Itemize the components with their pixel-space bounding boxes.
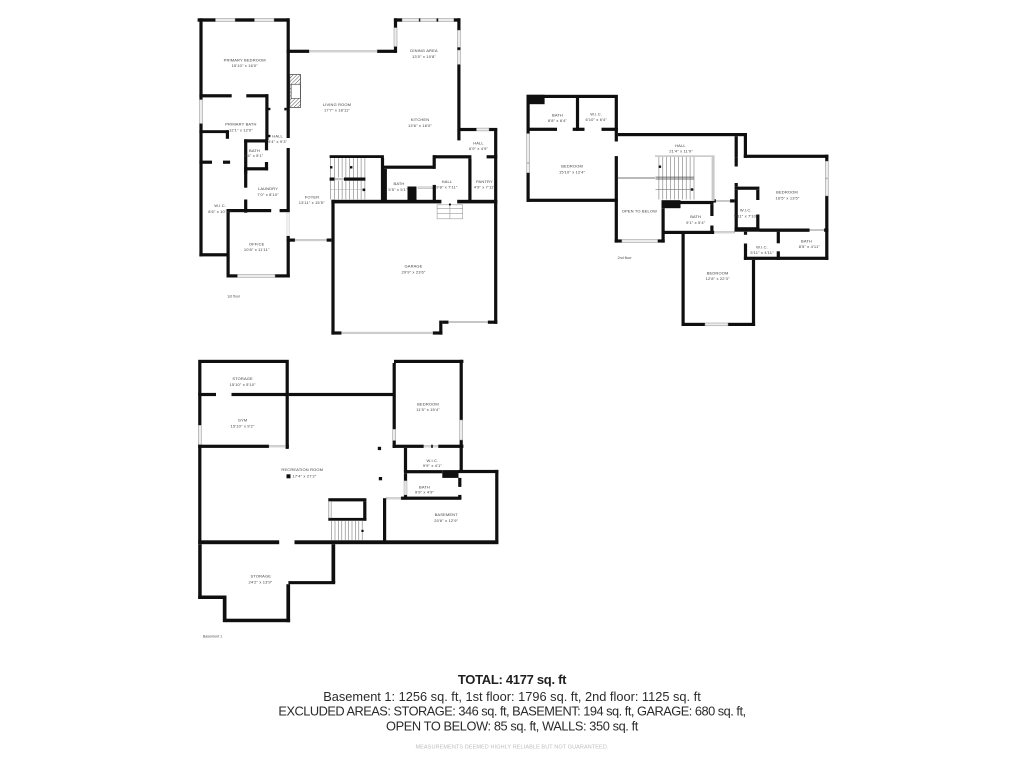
svg-text:W.I.C.: W.I.C. bbox=[214, 203, 226, 208]
svg-text:PANTRY: PANTRY bbox=[476, 179, 493, 184]
svg-text:21'4" x 11'9": 21'4" x 11'9" bbox=[669, 149, 693, 154]
svg-text:15'10" x 16'0": 15'10" x 16'0" bbox=[232, 63, 259, 68]
svg-text:9'9" x 4'9": 9'9" x 4'9" bbox=[415, 490, 435, 495]
svg-text:12'1" x 12'0": 12'1" x 12'0" bbox=[229, 127, 253, 132]
svg-text:13'0" x 10'8": 13'0" x 10'8" bbox=[412, 54, 436, 59]
svg-text:2nd floor: 2nd floor bbox=[618, 256, 633, 260]
svg-text:BATH: BATH bbox=[394, 181, 405, 186]
svg-text:BASEMENT: BASEMENT bbox=[435, 512, 459, 517]
svg-text:BATH: BATH bbox=[690, 214, 701, 219]
svg-text:BEDROOM: BEDROOM bbox=[561, 164, 583, 169]
svg-text:6'9" x 4'9": 6'9" x 4'9" bbox=[469, 146, 489, 151]
svg-text:16'5" x 13'5": 16'5" x 13'5" bbox=[776, 195, 800, 200]
svg-text:STORAGE: STORAGE bbox=[232, 376, 253, 381]
svg-text:8'8" x 6'4": 8'8" x 6'4" bbox=[548, 118, 568, 123]
svg-text:HALL: HALL bbox=[272, 134, 283, 139]
svg-text:24'2" x 13'9": 24'2" x 13'9" bbox=[248, 579, 272, 584]
svg-text:20'6" x 12'9": 20'6" x 12'9" bbox=[434, 518, 458, 523]
svg-text:11'5" x 15'4": 11'5" x 15'4" bbox=[416, 407, 440, 412]
svg-text:TOTAL: 4177 sq. ft: TOTAL: 4177 sq. ft bbox=[458, 672, 567, 687]
svg-text:OPEN TO BELOW: 85 sq. ft, WALL: OPEN TO BELOW: 85 sq. ft, WALLS: 350 sq.… bbox=[386, 719, 639, 734]
svg-text:17'4" x 27'2": 17'4" x 27'2" bbox=[293, 474, 317, 479]
svg-text:15'10" x 9'2": 15'10" x 9'2" bbox=[231, 424, 255, 429]
svg-text:MEASUREMENTS DEEMED HIGHLY REL: MEASUREMENTS DEEMED HIGHLY RELIABLE BUT … bbox=[415, 744, 608, 750]
svg-text:8'6" x 10'10": 8'6" x 10'10" bbox=[208, 209, 232, 214]
svg-text:BATH: BATH bbox=[552, 112, 563, 117]
svg-text:HALL: HALL bbox=[442, 179, 453, 184]
svg-text:GARAGE: GARAGE bbox=[404, 264, 422, 269]
svg-text:5'11" x 7'10": 5'11" x 7'10" bbox=[734, 213, 758, 218]
svg-text:13'6" x 16'0": 13'6" x 16'0" bbox=[408, 123, 432, 128]
svg-text:29'9" x 23'6": 29'9" x 23'6" bbox=[402, 269, 426, 274]
svg-text:HALL: HALL bbox=[473, 140, 484, 145]
svg-text:LIVING ROOM: LIVING ROOM bbox=[323, 102, 351, 107]
svg-text:BEDROOM: BEDROOM bbox=[417, 401, 439, 406]
svg-text:5'11" x 4'11": 5'11" x 4'11" bbox=[750, 250, 774, 255]
svg-text:4'9" x 7'11": 4'9" x 7'11" bbox=[474, 185, 496, 190]
svg-text:LAUNDRY: LAUNDRY bbox=[258, 186, 278, 191]
svg-text:13'11" x 15'5": 13'11" x 15'5" bbox=[299, 200, 325, 205]
svg-text:Basement 1: 1256 sq. ft, 1st f: Basement 1: 1256 sq. ft, 1st floor: 1796… bbox=[323, 689, 701, 704]
svg-text:9'8" x 7'11": 9'8" x 7'11" bbox=[436, 185, 458, 190]
svg-text:12'8" x 22'3": 12'8" x 22'3" bbox=[706, 276, 730, 281]
svg-text:OPEN TO BELOW: OPEN TO BELOW bbox=[622, 209, 657, 214]
svg-text:DINING AREA: DINING AREA bbox=[410, 48, 438, 53]
svg-text:W.I.C.: W.I.C. bbox=[740, 208, 752, 213]
svg-text:PRIMARY BATH: PRIMARY BATH bbox=[225, 122, 256, 127]
svg-text:5'5" x 5'1": 5'5" x 5'1" bbox=[388, 187, 408, 192]
svg-text:EXCLUDED AREAS: STORAGE: 346 s: EXCLUDED AREAS: STORAGE: 346 sq. ft, BAS… bbox=[278, 704, 745, 719]
svg-text:HALL: HALL bbox=[675, 143, 686, 148]
svg-text:10'8" x 11'11": 10'8" x 11'11" bbox=[244, 247, 270, 252]
svg-text:9'1" x 5'4": 9'1" x 5'4" bbox=[686, 220, 706, 225]
svg-text:17'7" x 18'11": 17'7" x 18'11" bbox=[324, 108, 350, 113]
svg-text:KITCHEN: KITCHEN bbox=[411, 117, 430, 122]
svg-text:OFFICE: OFFICE bbox=[249, 241, 265, 246]
svg-text:1st floor: 1st floor bbox=[227, 294, 241, 298]
svg-text:BEDROOM: BEDROOM bbox=[776, 190, 798, 195]
svg-text:15'10" x 5'10": 15'10" x 5'10" bbox=[229, 382, 256, 387]
svg-text:7'0" x 8'10": 7'0" x 8'10" bbox=[257, 192, 279, 197]
svg-text:STORAGE: STORAGE bbox=[251, 573, 272, 578]
svg-text:8'5" x 4'11": 8'5" x 4'11" bbox=[799, 244, 821, 249]
svg-text:BATH: BATH bbox=[419, 484, 430, 489]
svg-text:RECREATION ROOM: RECREATION ROOM bbox=[281, 467, 323, 472]
svg-text:15'10" x 12'4": 15'10" x 12'4" bbox=[559, 169, 586, 174]
svg-text:BEDROOM: BEDROOM bbox=[707, 271, 729, 276]
svg-text:W.I.C.: W.I.C. bbox=[756, 245, 768, 250]
svg-text:6'10" x 6'4": 6'10" x 6'4" bbox=[585, 117, 607, 122]
svg-text:PRIMARY BEDROOM: PRIMARY BEDROOM bbox=[224, 58, 266, 63]
svg-text:Basement 1: Basement 1 bbox=[203, 634, 222, 638]
svg-text:9'9" x 4'1": 9'9" x 4'1" bbox=[423, 463, 443, 468]
svg-text:BATH: BATH bbox=[801, 239, 812, 244]
svg-text:3'4" x 5'1": 3'4" x 5'1" bbox=[244, 153, 264, 158]
svg-text:9'4" x 9'3": 9'4" x 9'3" bbox=[268, 139, 288, 144]
svg-text:GYM: GYM bbox=[238, 418, 248, 423]
svg-text:W.I.C.: W.I.C. bbox=[590, 111, 602, 116]
svg-text:FOYER: FOYER bbox=[305, 195, 320, 200]
